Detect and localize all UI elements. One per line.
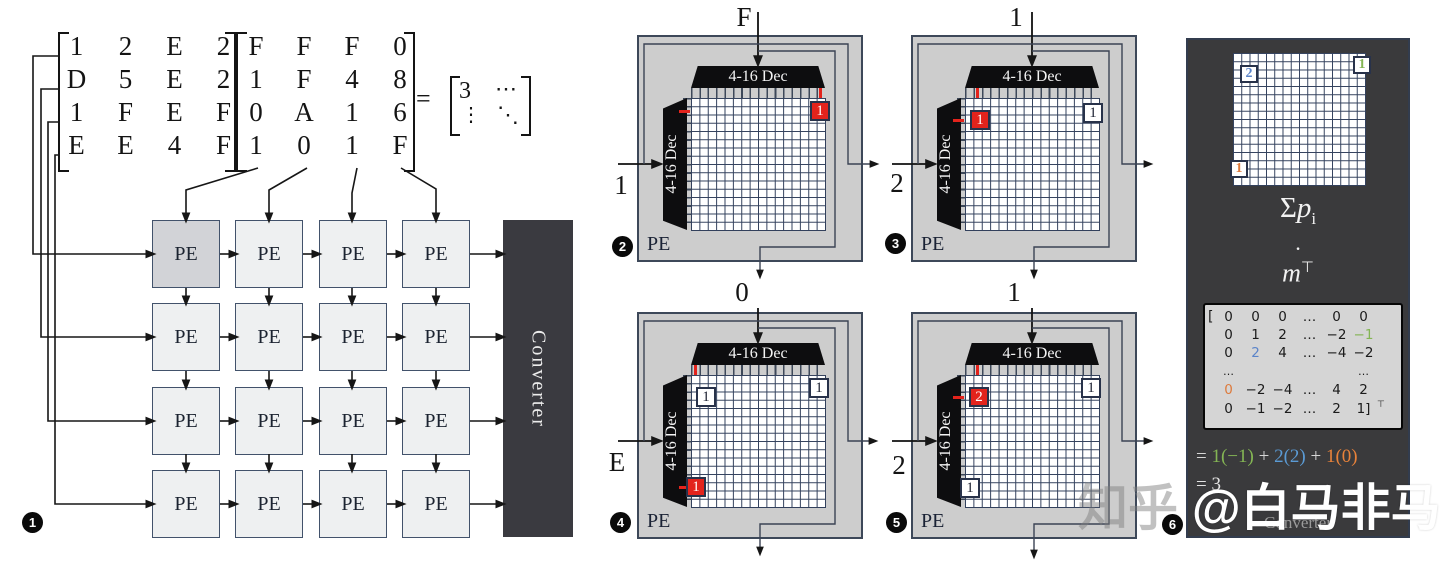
pe-box: PE — [319, 220, 387, 288]
top-decoder: 4-16 Dec — [965, 343, 1099, 365]
m-cell: −1 — [1242, 401, 1269, 417]
pe-box: PE — [319, 387, 387, 455]
pe-box: PE — [152, 303, 220, 371]
matrix-a-cell: E — [150, 30, 199, 63]
pe-panel-2: 4-16 Dec 4-16 Dec 1 PE — [637, 35, 863, 262]
sum-formula: Σpi — [1188, 192, 1408, 229]
matrix-a-cell: E — [101, 129, 150, 162]
eq-term-blue: 2(2) — [1274, 446, 1306, 467]
watermark-handle: @白马非马 — [1192, 480, 1440, 536]
m-matrix: [ 000…00 012…−2−1 024…−4−2 …… 0−2−4…42 0… — [1203, 303, 1403, 430]
eq-plus: + — [1259, 446, 1270, 467]
badge-5: 5 — [886, 512, 907, 533]
matrix-b-cell: 1 — [232, 63, 280, 96]
pe-box: PE — [402, 220, 470, 288]
matrix-a-cell: E — [150, 63, 199, 96]
figure-canvas: 12E2 D5E2 1FEF EE4F FFF0 1F48 0A16 101F … — [0, 0, 1440, 565]
matrix-b-cell: F — [328, 30, 376, 63]
m-cell: −2 — [1242, 382, 1269, 398]
m-matrix-row: 0−2−4…42 — [1215, 382, 1397, 400]
matrix-a: 12E2 D5E2 1FEF EE4F — [52, 30, 248, 162]
badge-3: 3 — [885, 233, 906, 254]
count-cell-red: 1 — [810, 101, 830, 121]
m-cell-green: −1 — [1350, 327, 1377, 343]
converter-panel: 2 1 1 Σpi · m⊤ [ 000…00 012…−2−1 024…−4−… — [1186, 38, 1410, 538]
pe-panel-4: 4-16 Dec 4-16 Dec 1 1 1 PE — [637, 312, 863, 539]
left-decoder: 4-16 Dec — [937, 375, 961, 507]
watermark: 知乎 @白马非马 — [1078, 468, 1440, 540]
m-cell: … — [1350, 365, 1377, 378]
count-grid — [691, 98, 826, 231]
m-matrix-row: 000…00 — [1215, 309, 1397, 327]
matrix-b-cell: 0 — [232, 96, 280, 129]
eq-plus: + — [1310, 446, 1321, 467]
matrix-a-cell: D — [52, 63, 101, 96]
p-symbol: p — [1297, 192, 1312, 224]
top-decoder: 4-16 Dec — [691, 66, 825, 88]
dot-product-equation: = 1(−1) + 2(2) + 1(0) — [1196, 446, 1358, 468]
m-cell: … — [1296, 345, 1323, 361]
matrix-a-cell: F — [101, 96, 150, 129]
matrix-a-cell: E — [52, 129, 101, 162]
selected-column-tick — [976, 365, 979, 375]
equals-sign: = — [416, 84, 431, 114]
matrix-a-cell: E — [150, 96, 199, 129]
pe-box: PE — [402, 387, 470, 455]
top-decoder-label: 4-16 Dec — [1002, 345, 1061, 363]
result-cell: ⋯ — [495, 76, 517, 102]
matrix-b-cell: F — [280, 30, 328, 63]
input-label-left: 1 — [606, 170, 636, 200]
pe-label: PE — [921, 233, 944, 256]
m-cell: 4 — [1269, 345, 1296, 361]
matrix-b-cell: A — [280, 96, 328, 129]
matrix-a-cell: 5 — [101, 63, 150, 96]
matrix-b-cell: 0 — [376, 30, 424, 63]
m-transpose: m⊤ — [1188, 258, 1408, 289]
matrix-a-cell: 4 — [150, 129, 199, 162]
input-label-left: 2 — [884, 450, 914, 480]
pe-box: PE — [235, 387, 303, 455]
m-cell: 0 — [1269, 309, 1296, 325]
m-cell: 2 — [1350, 382, 1377, 398]
count-cell: 1 — [1083, 103, 1103, 123]
count-cell-blue: 2 — [1240, 65, 1258, 83]
pe-box: PE — [235, 470, 303, 538]
result-cell: 3 — [459, 78, 471, 105]
converter-block: Converter — [503, 220, 573, 537]
m-cell: … — [1215, 365, 1242, 378]
matrix-b-cell: F — [376, 129, 424, 162]
input-label-top: F — [729, 2, 759, 32]
m-cell: … — [1296, 309, 1323, 325]
m-cell: −4 — [1323, 345, 1350, 361]
selected-row-tick — [953, 119, 964, 122]
matrix-a-cell: 2 — [101, 30, 150, 63]
count-cell-red: 1 — [970, 110, 990, 130]
m-matrix-row: 012…−2−1 — [1215, 327, 1397, 345]
pe-box: PE — [402, 470, 470, 538]
count-cell-green: 1 — [1353, 56, 1371, 74]
m-cell: 0 — [1215, 327, 1242, 343]
input-label-top: 1 — [1001, 2, 1031, 32]
input-label-top: 0 — [727, 277, 757, 307]
m-cell: 0 — [1350, 309, 1377, 325]
m-cell: 2 — [1323, 401, 1350, 417]
m-cell: −2 — [1269, 401, 1296, 417]
m-cell-orange: 0 — [1215, 382, 1242, 398]
decoder-ticks-top — [691, 365, 825, 375]
left-decoder: 4-16 Dec — [937, 98, 961, 230]
converter-label: Converter — [527, 330, 550, 428]
left-decoder-label: 4-16 Dec — [663, 98, 687, 230]
m-cell: 0 — [1215, 401, 1242, 417]
m-cell: 2 — [1269, 327, 1296, 343]
m-cell: −2 — [1350, 345, 1377, 361]
selected-column-tick — [819, 88, 822, 98]
watermark-site: 知乎 — [1078, 480, 1192, 536]
sigma-symbol: Σ — [1280, 192, 1297, 224]
m-symbol: m — [1282, 259, 1301, 288]
matrix-b-cell: F — [232, 30, 280, 63]
count-cell: 1 — [696, 387, 716, 407]
m-cell: 0 — [1242, 309, 1269, 325]
m-cell: 0 — [1323, 309, 1350, 325]
selected-row-tick — [953, 396, 964, 399]
pe-panel-3: 4-16 Dec 4-16 Dec 1 1 PE — [911, 35, 1137, 262]
left-decoder: 4-16 Dec — [663, 98, 687, 230]
top-decoder-label: 4-16 Dec — [1002, 68, 1061, 86]
matrix-transpose-symbol: ⊤ — [1377, 400, 1385, 410]
matrix-a-cell: 1 — [52, 96, 101, 129]
m-matrix-row: …… — [1215, 365, 1397, 383]
matrix-b: FFF0 1F48 0A16 101F — [232, 30, 424, 162]
result-bracket-right — [521, 76, 531, 136]
m-matrix-row: 024…−4−2 — [1215, 345, 1397, 363]
pe-box: PE — [319, 470, 387, 538]
sum-subscript: i — [1311, 209, 1316, 228]
pe-label: PE — [647, 233, 670, 256]
matrix-b-cell: 0 — [280, 129, 328, 162]
m-cell: −4 — [1269, 382, 1296, 398]
eq-equals: = — [1196, 446, 1207, 467]
m-cell: … — [1296, 401, 1323, 417]
matrix-a-cell: 1 — [52, 30, 101, 63]
pe-box: PE — [152, 220, 220, 288]
count-cell: 1 — [1081, 378, 1101, 398]
matrix-b-bracket-right — [404, 32, 415, 172]
pe-box: PE — [235, 220, 303, 288]
m-cell: 0 — [1215, 345, 1242, 361]
badge-4: 4 — [610, 512, 631, 533]
m-cell: −2 — [1323, 327, 1350, 343]
selected-column-tick — [694, 365, 697, 375]
pe-label: PE — [647, 510, 670, 533]
matrix-b-cell: F — [280, 63, 328, 96]
selected-column-tick — [976, 88, 979, 98]
top-decoder: 4-16 Dec — [691, 343, 825, 365]
decoder-ticks-top — [691, 88, 825, 98]
m-cell-blue: 2 — [1242, 345, 1269, 361]
m-cell: 1 — [1242, 327, 1269, 343]
eq-term-orange: 1(0) — [1326, 446, 1358, 467]
result-cell: ⋮ — [461, 102, 481, 127]
badge-1: 1 — [22, 512, 43, 533]
count-cell: 1 — [960, 478, 980, 498]
matrix-b-cell: 4 — [328, 63, 376, 96]
count-cell-red: 1 — [686, 477, 706, 497]
count-cell-orange: 1 — [1230, 160, 1248, 178]
pe-box: PE — [152, 387, 220, 455]
matrix-open-bracket: [ — [1208, 309, 1213, 325]
left-decoder-label: 4-16 Dec — [937, 98, 961, 230]
selected-row-tick — [679, 110, 690, 113]
count-cell-red: 2 — [969, 387, 989, 407]
pe-box: PE — [319, 303, 387, 371]
input-label-left: 2 — [882, 168, 912, 198]
m-matrix-row: 0−1−2…21]⊤ — [1215, 400, 1397, 418]
m-cell: … — [1296, 382, 1323, 398]
top-decoder-label: 4-16 Dec — [728, 68, 787, 86]
input-label-left: E — [602, 447, 632, 477]
top-decoder: 4-16 Dec — [965, 66, 1099, 88]
input-label-top: 1 — [999, 277, 1029, 307]
top-decoder-label: 4-16 Dec — [728, 345, 787, 363]
badge-2: 2 — [612, 236, 633, 257]
matrix-b-cell: 1 — [328, 129, 376, 162]
matrix-b-cell: 1 — [232, 129, 280, 162]
matrix-b-cell: 1 — [328, 96, 376, 129]
pe-box: PE — [235, 303, 303, 371]
eq-term-green: 1(−1) — [1211, 446, 1253, 467]
transpose-symbol: ⊤ — [1301, 260, 1314, 276]
m-cell: 4 — [1323, 382, 1350, 398]
pe-label: PE — [921, 510, 944, 533]
count-cell: 1 — [809, 378, 829, 398]
pe-box: PE — [152, 470, 220, 538]
m-cell: 1] — [1350, 401, 1377, 417]
m-cell: 0 — [1215, 309, 1242, 325]
pe-box: PE — [402, 303, 470, 371]
decoder-ticks-top — [965, 88, 1099, 98]
left-decoder-label: 4-16 Dec — [937, 375, 961, 507]
decoder-ticks-top — [965, 365, 1099, 375]
m-cell: … — [1296, 327, 1323, 343]
result-cell: ⋱ — [497, 102, 519, 128]
